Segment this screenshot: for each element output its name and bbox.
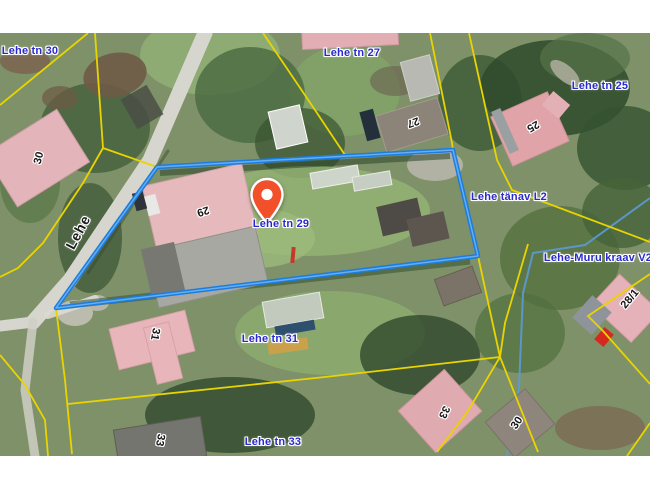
parcel-label-lehe-tn-31: Lehe tn 31 — [242, 333, 298, 345]
parcel-label-lehe-tn-29: Lehe tn 29 — [253, 218, 309, 230]
pin-body-icon — [252, 179, 283, 223]
map-screenshot: Lehe tn 30 Lehe tn 27 Lehe tn 25 Lehe tä… — [0, 0, 650, 487]
top-margin — [0, 0, 650, 33]
parcel-label-lehe-tn-27: Lehe tn 27 — [324, 47, 380, 59]
map-canvas[interactable] — [0, 33, 650, 456]
parcel-label-lehe-tn-25: Lehe tn 25 — [572, 80, 628, 92]
building-number: 31 — [148, 327, 162, 341]
parcel-label-lehe-tanav-l2: Lehe tänav L2 — [471, 191, 547, 203]
parcel-label-lehe-muru-kraav-v2: Lehe-Muru kraav V2 — [544, 252, 650, 264]
building-number: 33 — [153, 433, 167, 447]
parcel-label-lehe-tn-33: Lehe tn 33 — [245, 436, 301, 448]
bottom-margin — [0, 456, 650, 487]
parcel-label-lehe-tn-30: Lehe tn 30 — [2, 45, 58, 57]
pin-hole-icon — [261, 189, 272, 200]
